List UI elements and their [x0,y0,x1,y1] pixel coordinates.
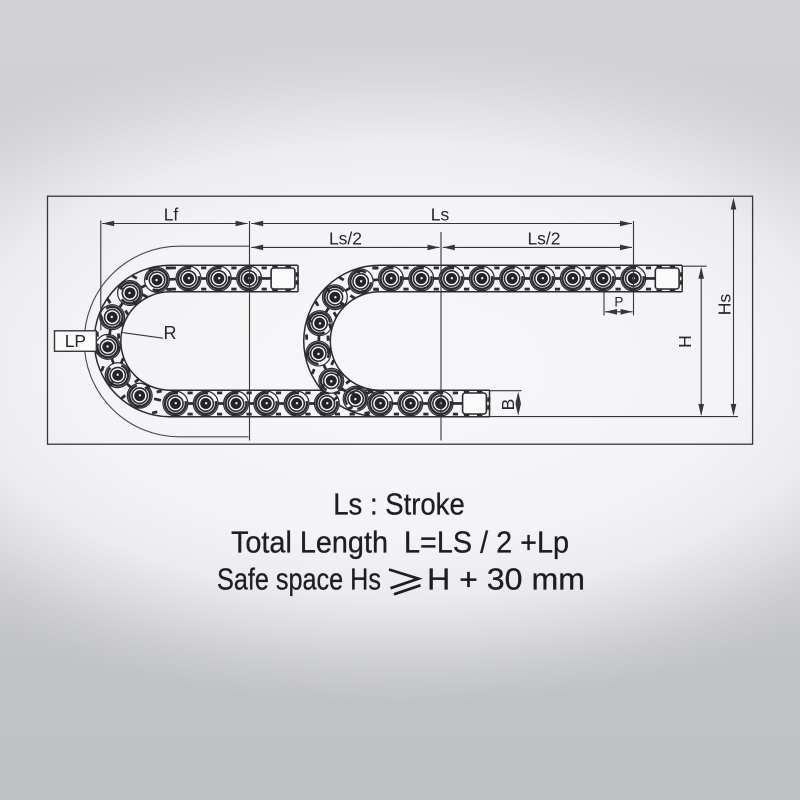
svg-text:Ls: Ls [431,204,450,224]
svg-text:B: B [498,399,518,411]
svg-text:P: P [614,295,623,310]
svg-text:LP: LP [65,331,86,351]
svg-text:Safe space Hs: Safe space Hs [217,562,381,597]
svg-text:Ls/2: Ls/2 [329,229,362,249]
svg-text:Ls/2: Ls/2 [527,229,560,249]
svg-text:Total Length L=LS / 2 +Lp: Total Length L=LS / 2 +Lp [231,525,569,560]
svg-text:Ls : Stroke: Ls : Stroke [333,487,465,522]
svg-text:R: R [164,323,177,343]
svg-text:H: H [675,335,695,348]
svg-text:Hs: Hs [715,294,735,316]
svg-text:Lf: Lf [164,205,179,225]
svg-text:H + 30 mm: H + 30 mm [427,562,585,597]
